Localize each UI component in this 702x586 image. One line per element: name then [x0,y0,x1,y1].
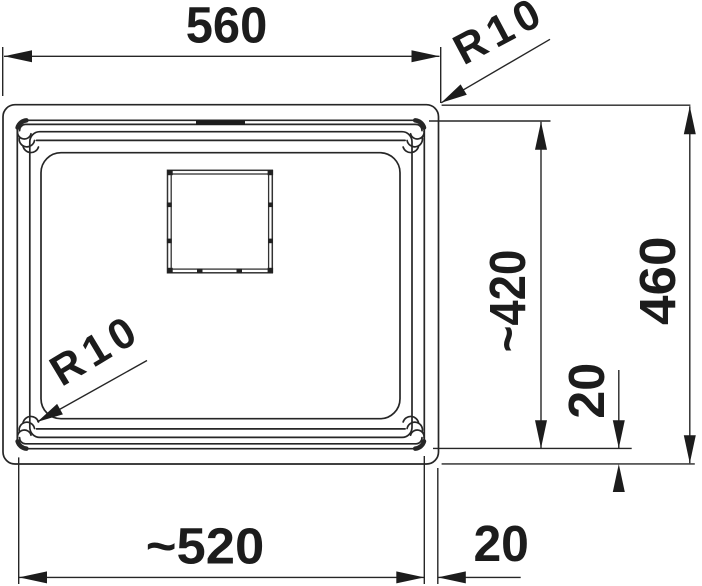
svg-text:~520: ~520 [146,517,265,574]
svg-text:460: 460 [629,236,686,325]
svg-text:~420: ~420 [479,250,536,353]
svg-text:20: 20 [473,515,529,572]
svg-text:560: 560 [186,0,268,54]
svg-text:20: 20 [558,363,615,419]
